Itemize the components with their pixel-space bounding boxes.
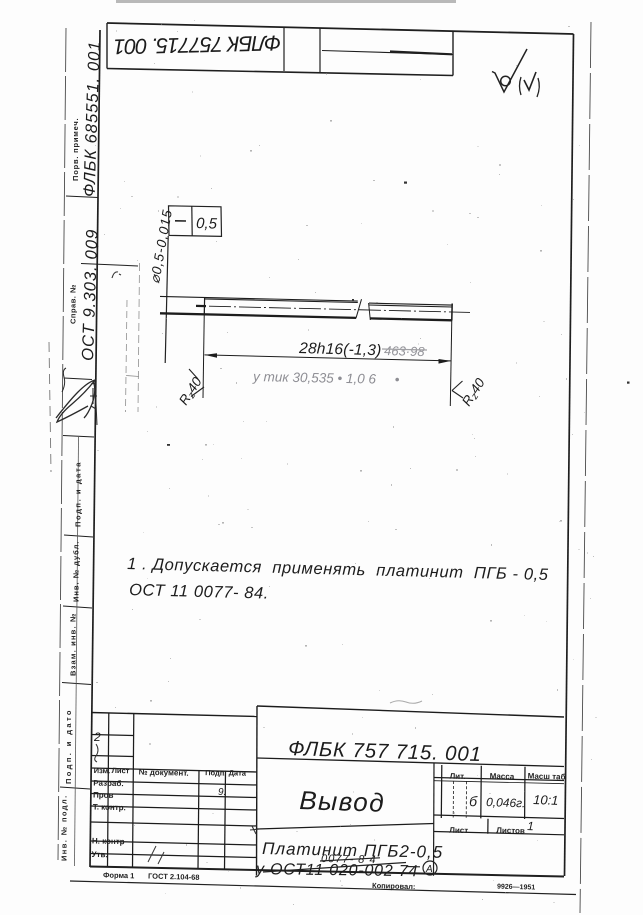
svg-text:Листов: Листов — [496, 826, 525, 836]
svg-text:0,5: 0,5 — [196, 215, 218, 233]
svg-text:Т. контр.: Т. контр. — [93, 802, 126, 812]
svg-text:Подп. и дата: Подп. и дата — [74, 461, 83, 527]
svg-text:Пров: Пров — [93, 790, 114, 799]
svg-text:1: 1 — [527, 819, 534, 833]
svg-text:Форма 1: Форма 1 — [103, 871, 135, 881]
svg-text:9.: 9. — [218, 787, 226, 798]
svg-text:Лист: Лист — [449, 826, 468, 835]
svg-text:Лист: Лист — [112, 766, 130, 775]
svg-text:Инв. № подл.: Инв. № подл. — [60, 794, 69, 861]
svg-text:Масш таб: Масш таб — [528, 772, 566, 782]
svg-text:Разраб.: Разраб. — [93, 778, 123, 788]
svg-text:Изм.: Изм. — [94, 766, 111, 775]
svg-text:Инв. № дубл.: Инв. № дубл. — [72, 541, 81, 602]
svg-text:Справ. №: Справ. № — [69, 284, 78, 324]
svg-text:463·98: 463·98 — [384, 343, 426, 359]
svg-text:Взам. инв. №: Взам. инв. № — [69, 612, 78, 676]
svg-text:А: А — [425, 864, 433, 875]
svg-text:ГОСТ 2.104-68: ГОСТ 2.104-68 — [148, 872, 200, 882]
svg-text:Порв. примеч.: Порв. примеч. — [71, 118, 80, 181]
svg-text:Н. контр: Н. контр — [92, 836, 125, 846]
svg-text:9926—1951: 9926—1951 — [497, 884, 535, 892]
svg-text:№ документ.: № документ. — [139, 768, 189, 778]
svg-text:Дата: Дата — [229, 768, 247, 777]
svg-text:ФЛБК 757715. 001: ФЛБК 757715. 001 — [114, 31, 281, 59]
svg-text:Подп.: Подп. — [205, 768, 226, 778]
svg-text:Вывод: Вывод — [299, 785, 386, 818]
svg-text:2: 2 — [93, 730, 101, 744]
svg-text:Лит.: Лит. — [450, 772, 466, 781]
svg-text:ОСТ 11 0077- 84.: ОСТ 11 0077- 84. — [129, 581, 269, 603]
svg-text:Подп. и дато: Подп. и дато — [64, 708, 73, 784]
svg-text:Утв.: Утв. — [91, 850, 107, 859]
svg-text:0,046г.: 0,046г. — [486, 795, 526, 810]
svg-text:28h16(-1,3): 28h16(-1,3) — [298, 340, 382, 359]
svg-text:Масса: Масса — [490, 772, 515, 782]
svg-text:10:1: 10:1 — [533, 792, 559, 808]
svg-text:у тик 30,535 • 1,0 6 •: у тик 30,535 • 1,0 6 • — [252, 369, 400, 387]
